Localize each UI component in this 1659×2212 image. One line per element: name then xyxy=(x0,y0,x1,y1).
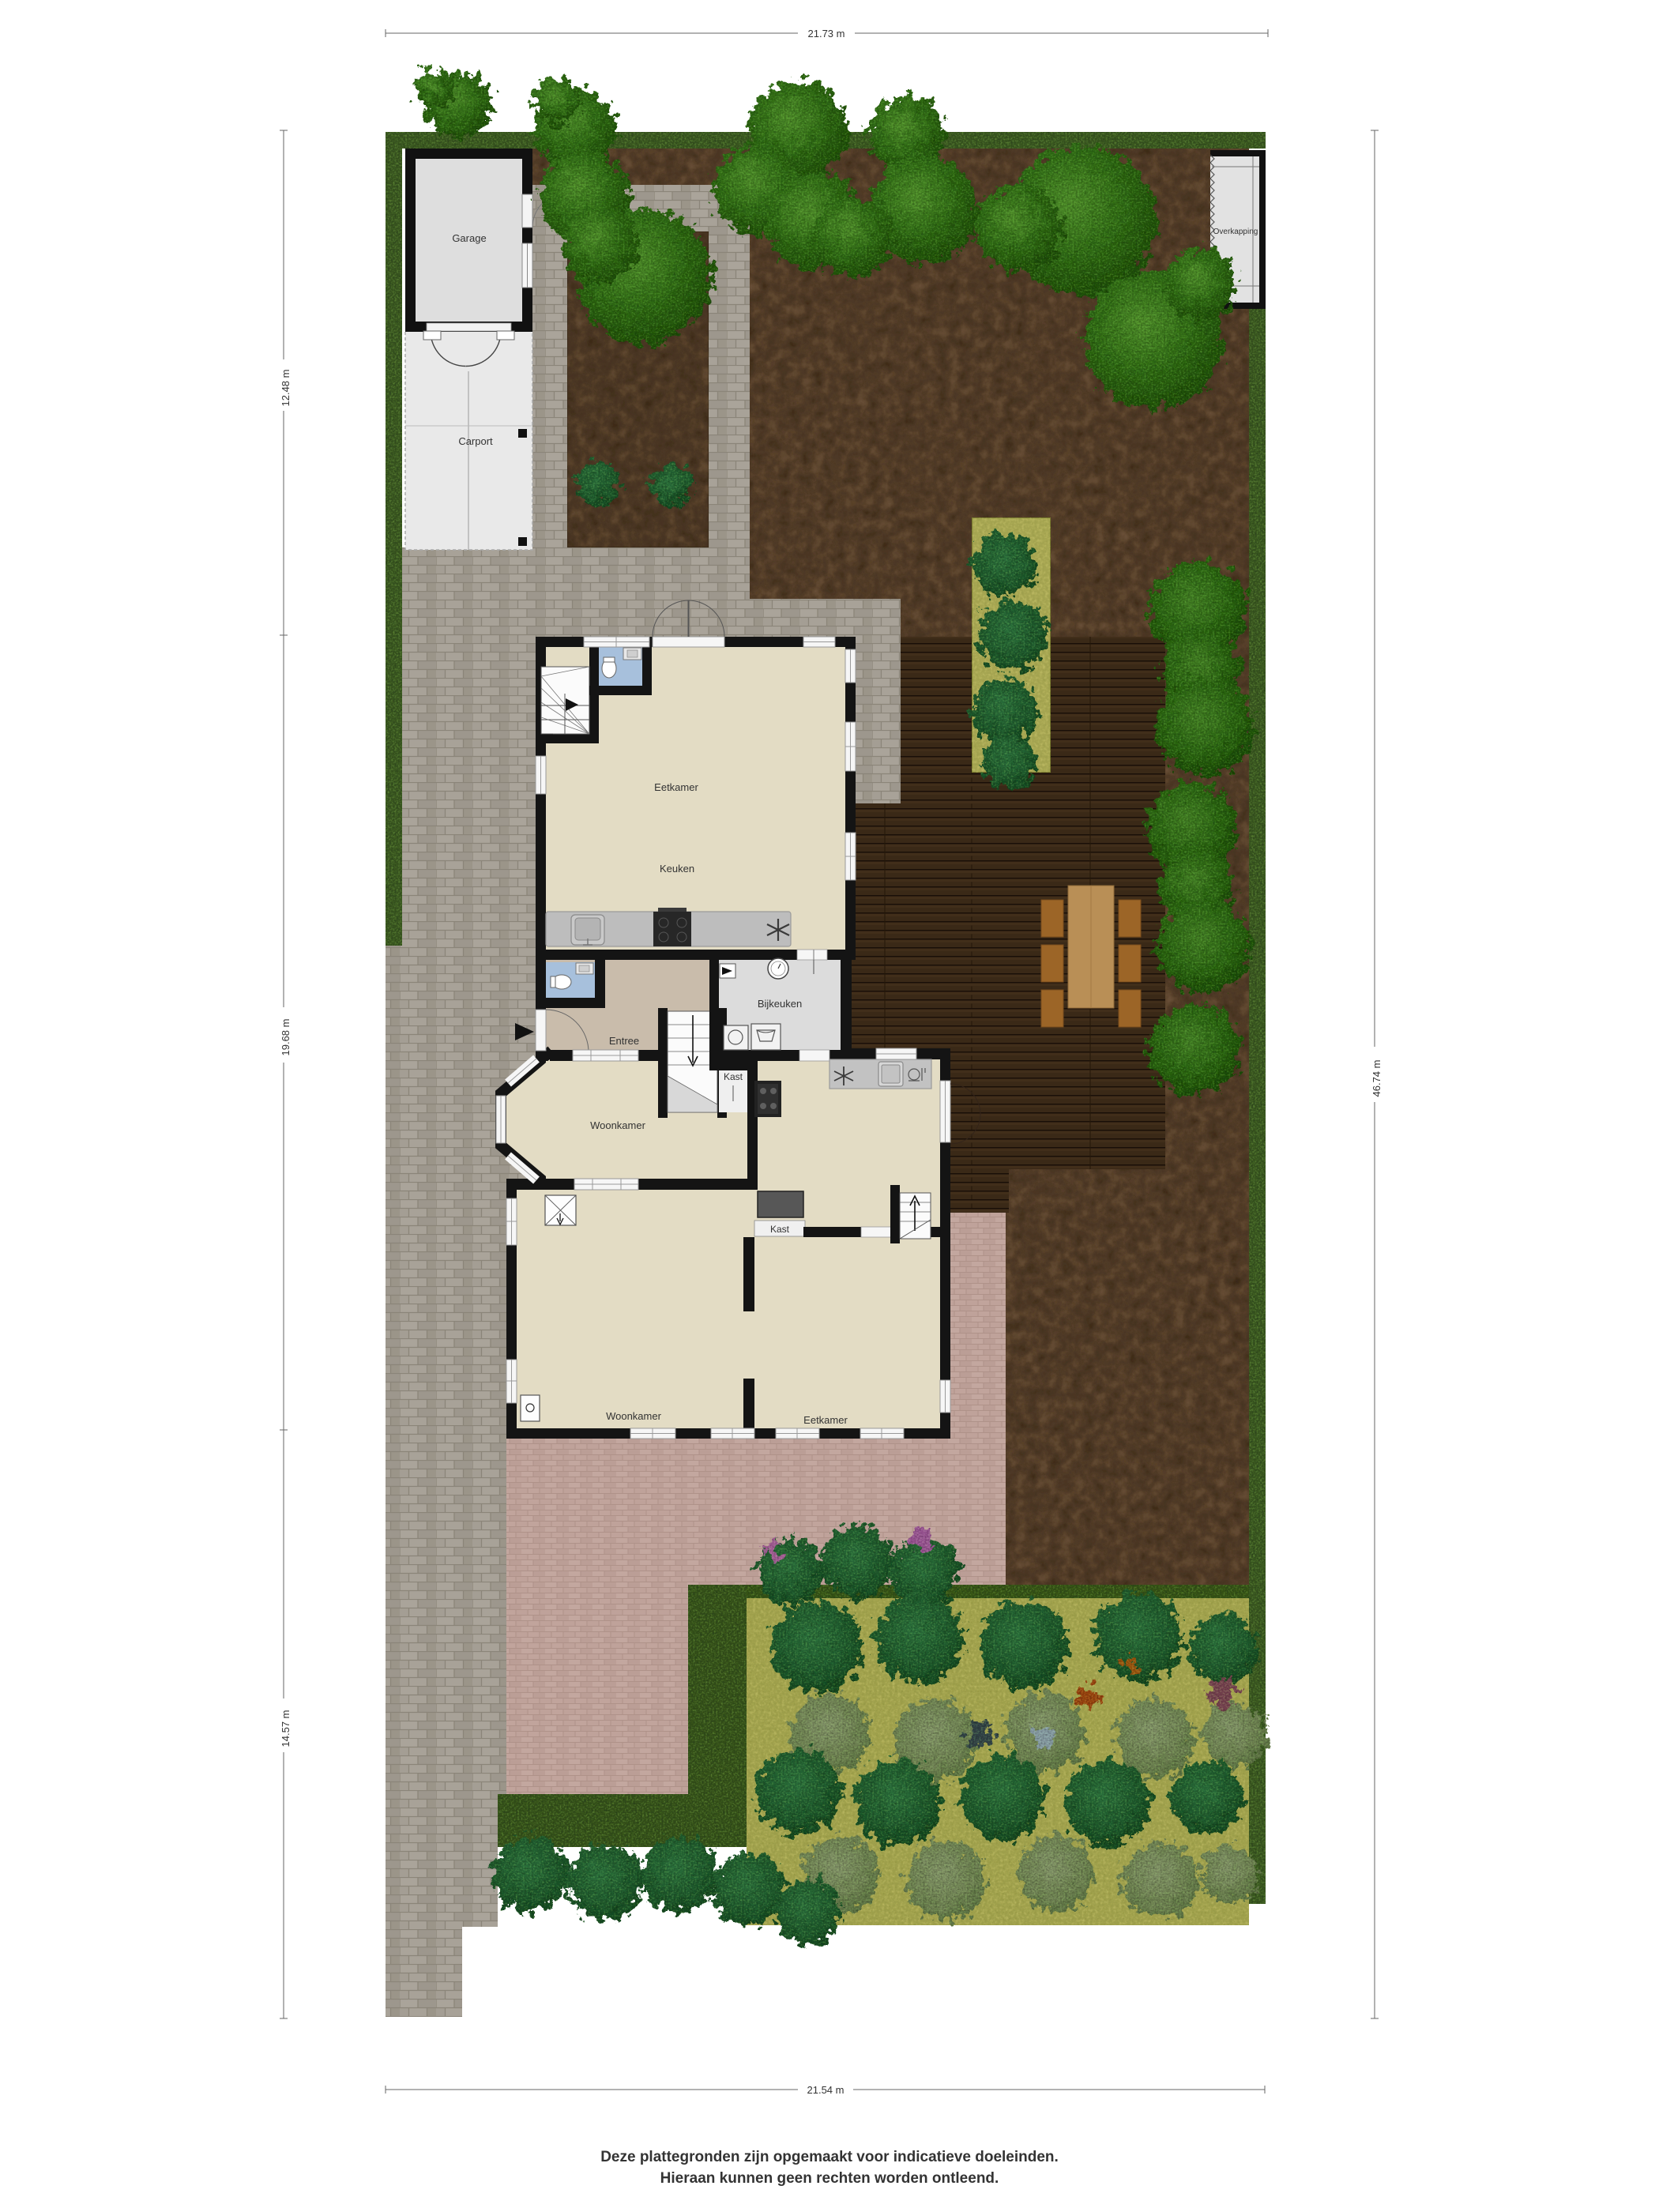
svg-text:Bijkeuken: Bijkeuken xyxy=(758,998,802,1010)
svg-text:Carport: Carport xyxy=(458,435,493,447)
svg-text:Woonkamer: Woonkamer xyxy=(590,1119,646,1131)
svg-text:Eetkamer: Eetkamer xyxy=(803,1414,848,1426)
svg-text:12.48 m: 12.48 m xyxy=(280,370,292,407)
svg-text:Overkapping: Overkapping xyxy=(1213,228,1258,236)
svg-text:Kast: Kast xyxy=(724,1071,743,1082)
svg-text:19.68 m: 19.68 m xyxy=(280,1019,292,1056)
svg-text:Garage: Garage xyxy=(452,232,486,244)
svg-text:21.73 m: 21.73 m xyxy=(808,28,845,39)
svg-text:Kast: Kast xyxy=(770,1224,790,1235)
svg-text:Entree: Entree xyxy=(609,1035,639,1047)
svg-text:Woonkamer: Woonkamer xyxy=(606,1410,662,1422)
svg-text:Hieraan kunnen geen rechten wo: Hieraan kunnen geen rechten worden ontle… xyxy=(660,2170,999,2187)
svg-text:Keuken: Keuken xyxy=(660,863,694,875)
svg-text:Eetkamer: Eetkamer xyxy=(654,781,698,793)
svg-text:Deze plattegronden zijn opgema: Deze plattegronden zijn opgemaakt voor i… xyxy=(600,2149,1059,2165)
svg-text:14.57 m: 14.57 m xyxy=(280,1710,292,1747)
svg-text:46.74 m: 46.74 m xyxy=(1371,1060,1382,1097)
svg-text:21.54 m: 21.54 m xyxy=(807,2084,845,2096)
